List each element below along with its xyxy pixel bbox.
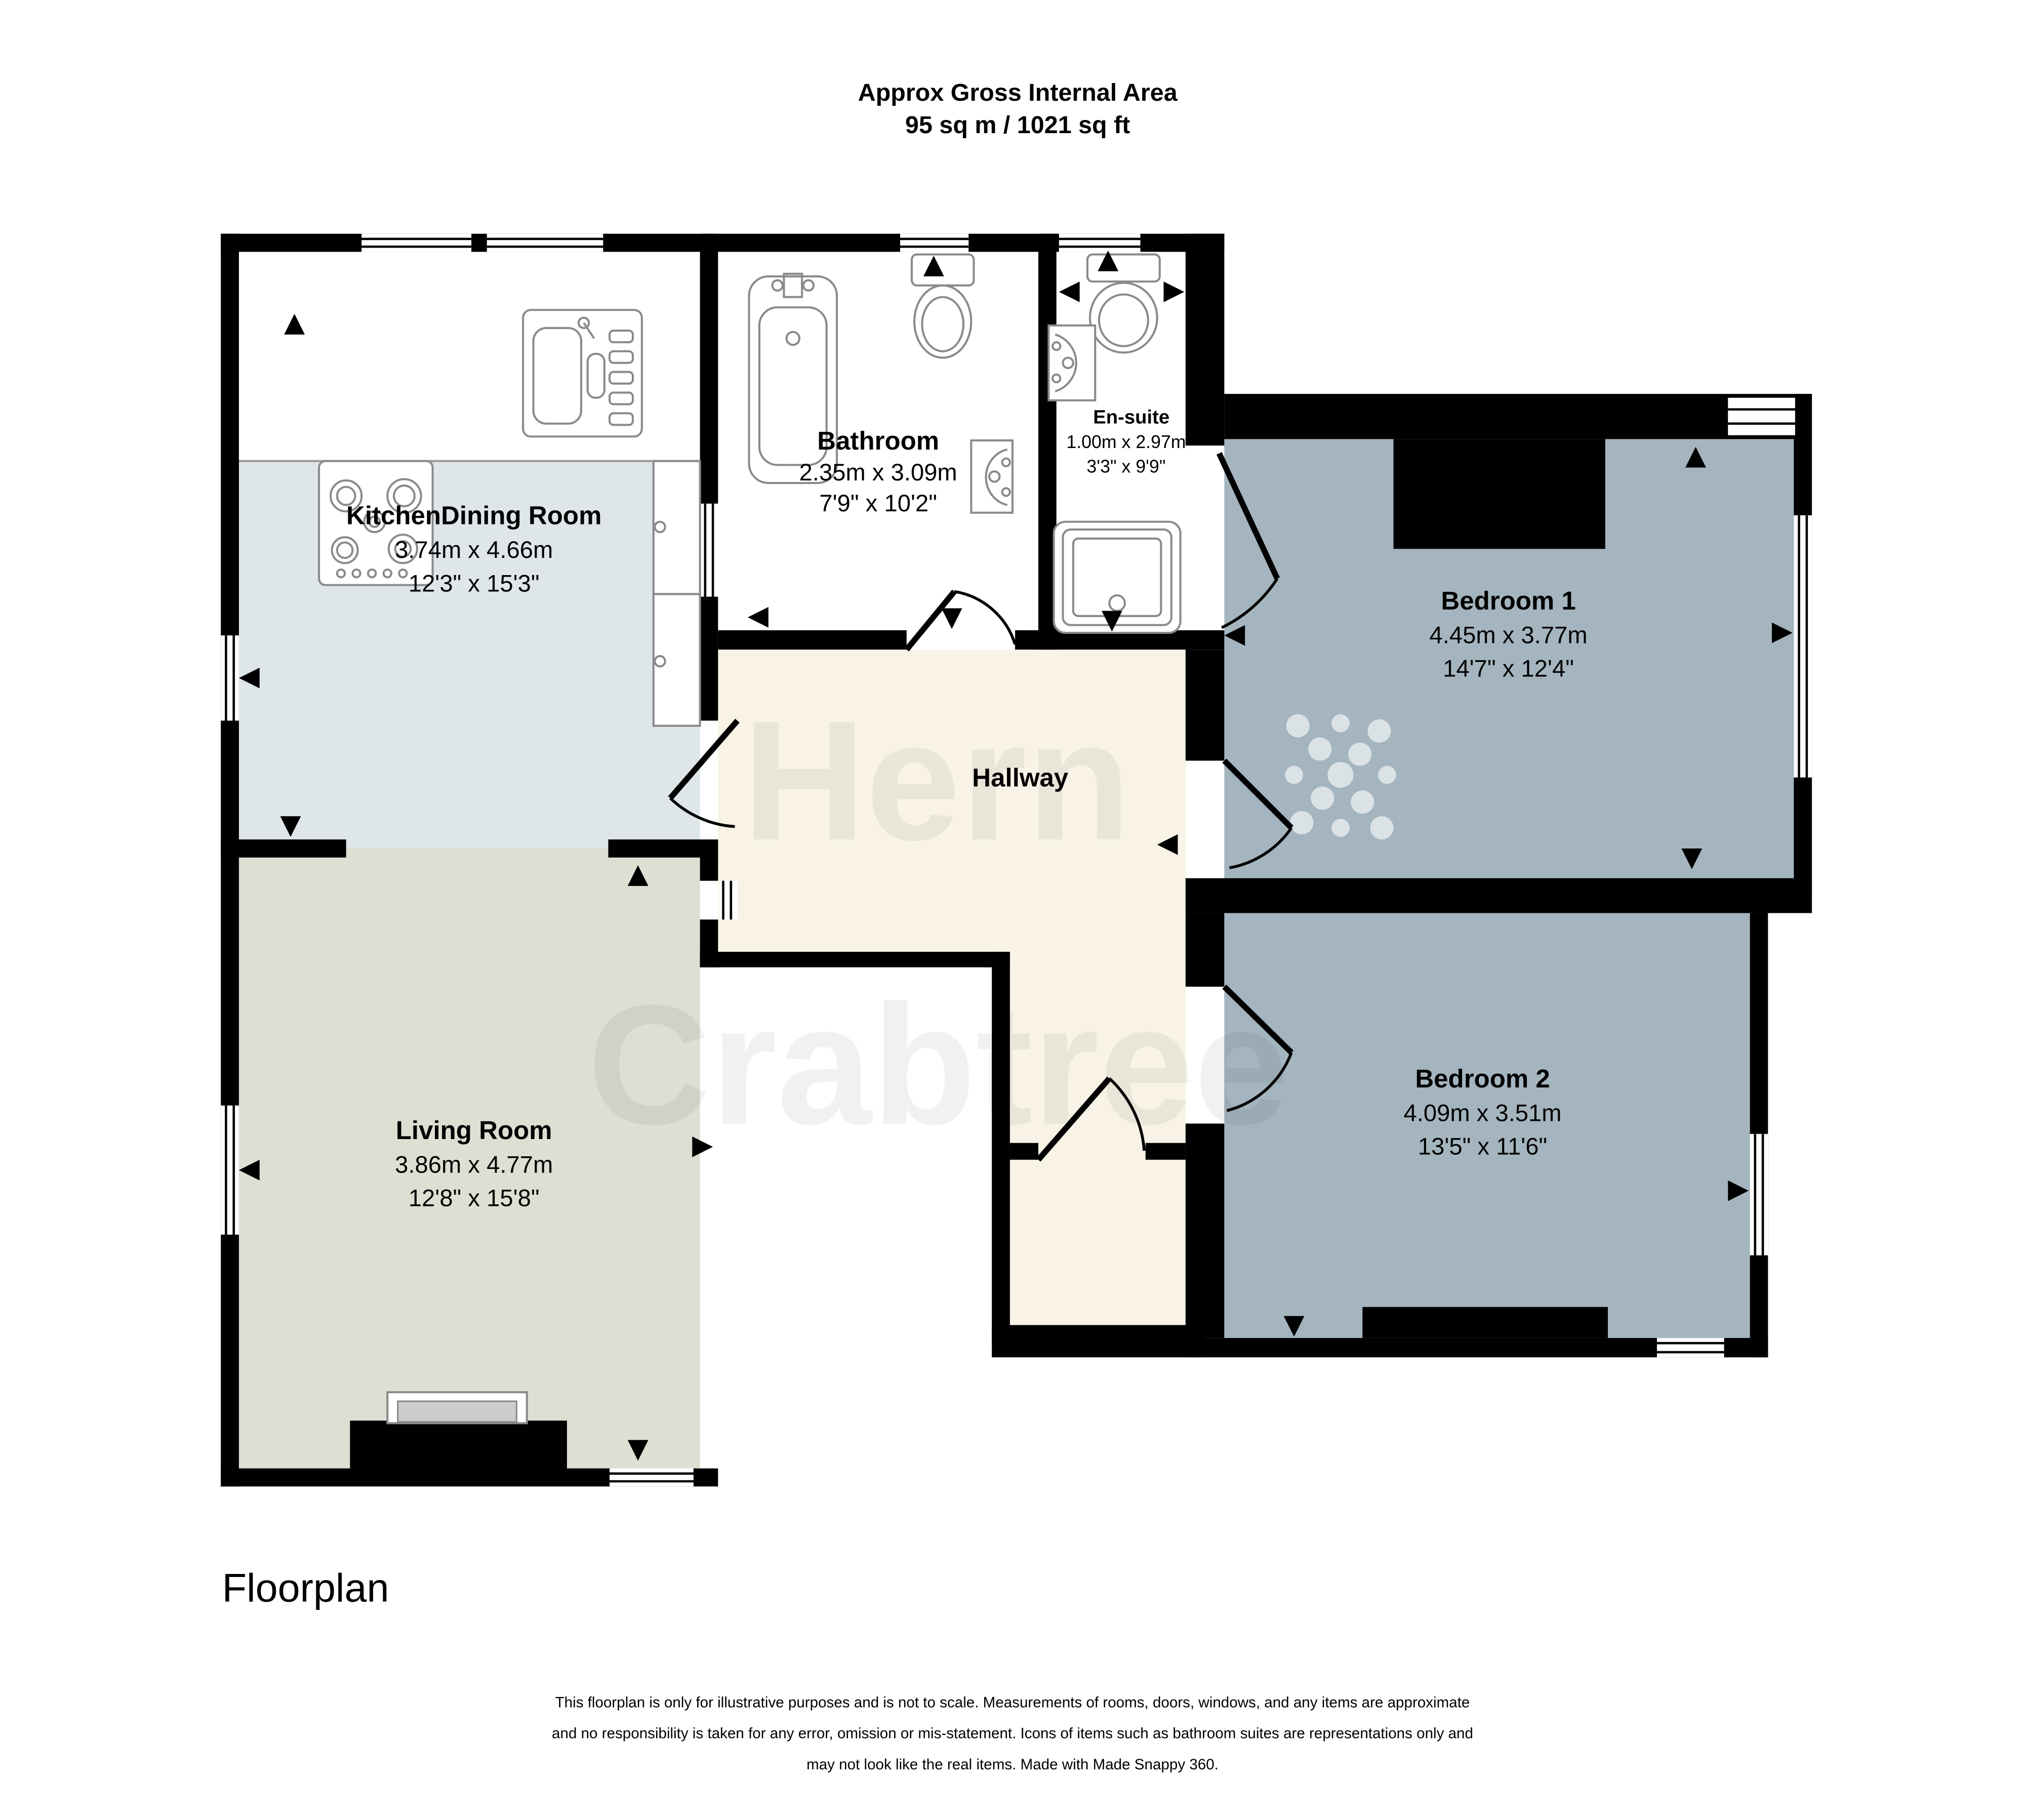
kitchen-metric: 3.74m x 4.66m xyxy=(395,537,553,563)
basin-icon xyxy=(1048,326,1095,400)
window-symbol xyxy=(700,504,718,597)
basin-icon xyxy=(971,440,1012,513)
window-symbol xyxy=(1728,398,1795,435)
bedroom1-chimney-breast xyxy=(1394,439,1605,549)
window-symbol xyxy=(221,635,239,720)
kitchen-units-icon xyxy=(654,461,700,726)
bathroom-imperial: 7'9" x 10'2" xyxy=(819,490,937,517)
window-symbol xyxy=(1750,1134,1768,1256)
header-line1: Approx Gross Internal Area xyxy=(858,79,1178,106)
living-metric: 3.86m x 4.77m xyxy=(395,1151,553,1178)
bedroom2-name: Bedroom 2 xyxy=(1415,1064,1550,1093)
bedroom2-imperial: 13'5" x 11'6" xyxy=(1418,1134,1547,1160)
window-symbol xyxy=(361,234,471,252)
watermark-line1: Hern xyxy=(743,685,1131,876)
kitchen-sink-icon xyxy=(523,310,642,436)
floorplan-caption: Floorplan xyxy=(222,1565,389,1610)
disclaimer-line3: may not look like the real items. Made w… xyxy=(806,1756,1219,1773)
disclaimer-line1: This floorplan is only for illustrative … xyxy=(555,1694,1470,1711)
window-symbol xyxy=(900,234,968,252)
window-symbol xyxy=(719,881,738,920)
bedroom1-name: Bedroom 1 xyxy=(1441,586,1575,615)
bathroom-name: Bathroom xyxy=(817,426,939,455)
hallway-name: Hallway xyxy=(972,763,1069,792)
disclaimer-line2: and no responsibility is taken for any e… xyxy=(552,1725,1473,1742)
bedroom2-metric: 4.09m x 3.51m xyxy=(1404,1100,1562,1126)
window-symbol xyxy=(1794,515,1812,778)
kitchen-name: KitchenDining Room xyxy=(346,501,601,530)
bedroom1-imperial: 14'7" x 12'4" xyxy=(1443,656,1574,682)
living-imperial: 12'8" x 15'8" xyxy=(409,1185,540,1212)
living-name: Living Room xyxy=(396,1116,552,1145)
window-symbol xyxy=(221,1106,239,1235)
window-symbol xyxy=(1657,1338,1724,1357)
watermark-line2: Crabtree xyxy=(588,969,1289,1160)
bedroom1-metric: 4.45m x 3.77m xyxy=(1430,622,1588,649)
floorplan-page: Approx Gross Internal Area 95 sq m / 102… xyxy=(0,0,2025,1819)
bedroom2-bay-block xyxy=(1362,1307,1608,1338)
window-symbol xyxy=(487,234,603,252)
floorplan-svg: Approx Gross Internal Area 95 sq m / 102… xyxy=(0,0,2025,1819)
toilet-icon xyxy=(912,255,974,358)
ensuite-name: En-suite xyxy=(1093,407,1169,428)
window-symbol xyxy=(1059,234,1141,252)
ensuite-metric: 1.00m x 2.97m xyxy=(1066,432,1186,452)
bathroom-metric: 2.35m x 3.09m xyxy=(799,459,957,486)
window-symbol xyxy=(610,1469,694,1487)
toilet-icon xyxy=(1087,255,1160,353)
kitchen-imperial: 12'3" x 15'3" xyxy=(409,570,540,597)
ensuite-imperial: 3'3" x 9'9" xyxy=(1086,457,1165,477)
header-line2: 95 sq m / 1021 sq ft xyxy=(905,111,1130,139)
